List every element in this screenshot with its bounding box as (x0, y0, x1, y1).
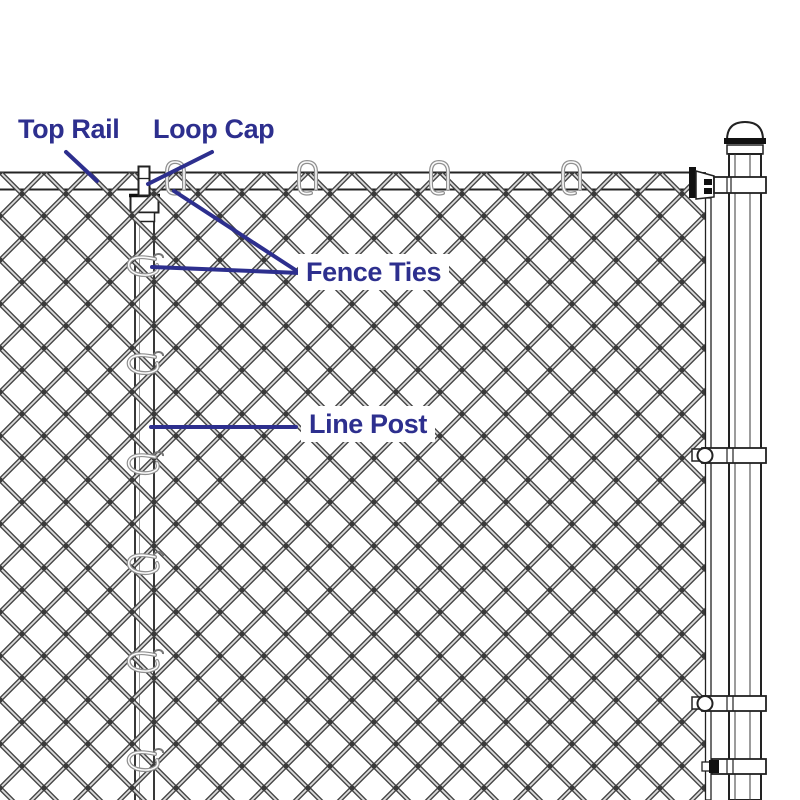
dome-cap-icon (727, 122, 763, 140)
fence-ties-label: Fence Ties (298, 254, 449, 290)
dome-cap-band (724, 138, 766, 144)
top-rail-label: Top Rail (18, 113, 119, 145)
line-post-label: Line Post (301, 406, 435, 442)
fence-illustration (0, 0, 800, 800)
fence-diagram: Top Rail Loop Cap Fence Ties Line Post (0, 0, 800, 800)
carriage-bolt-icon (698, 448, 713, 463)
carriage-bolt-icon (698, 696, 713, 711)
brace-band (702, 759, 766, 774)
brace-band (692, 448, 766, 463)
loop-cap-label: Loop Cap (153, 113, 274, 145)
brace-band (692, 696, 766, 711)
loop-cap (139, 167, 150, 196)
